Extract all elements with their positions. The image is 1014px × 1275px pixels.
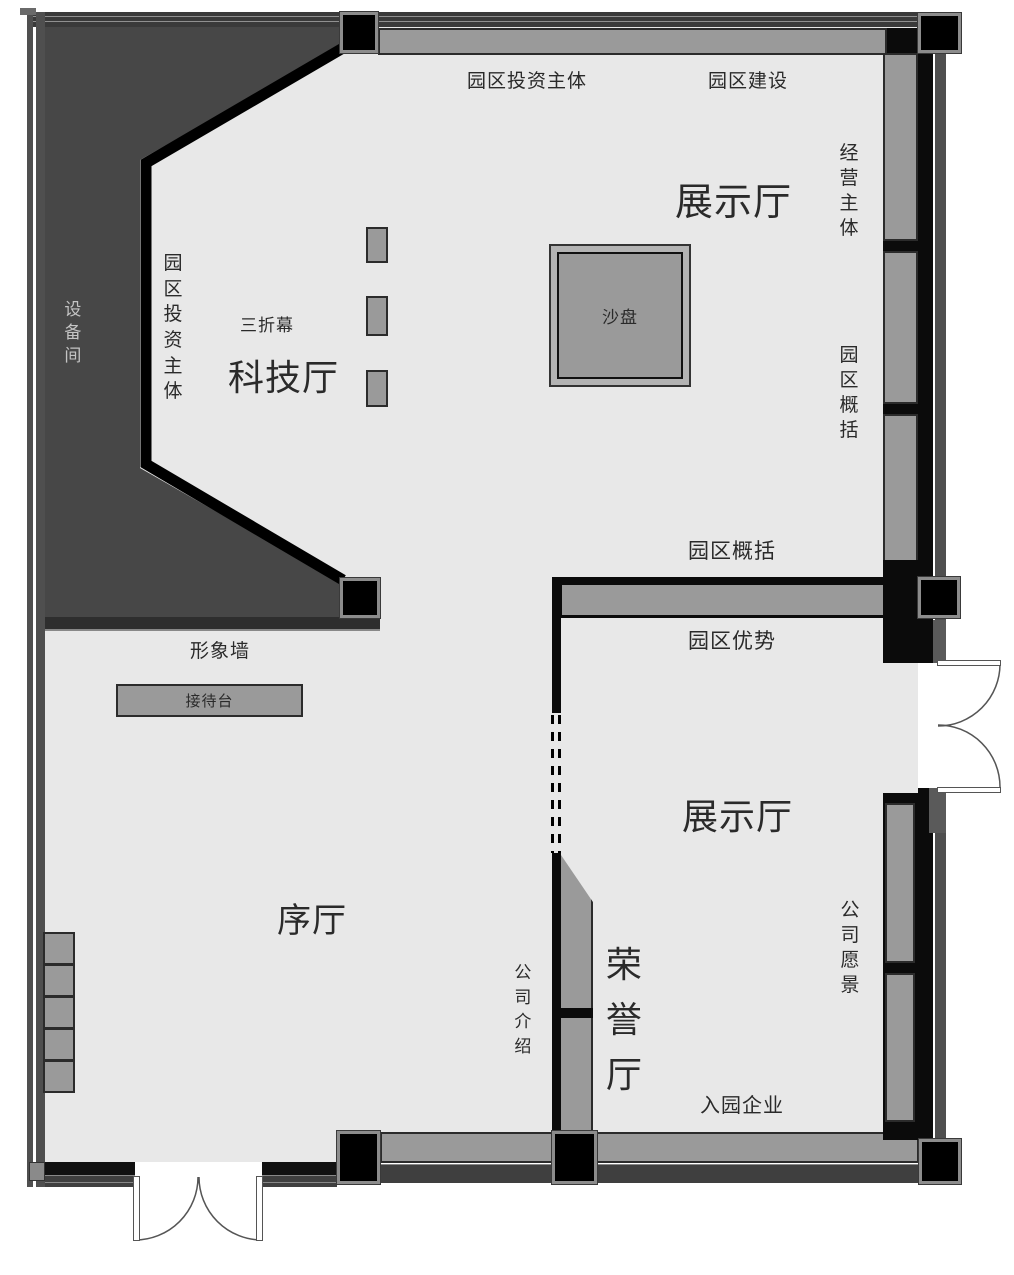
honor-hall-panel xyxy=(561,855,593,1132)
right-door-bottom-arc xyxy=(938,725,1000,787)
bottom-left-corner-block xyxy=(29,1162,45,1181)
label-image-wall: 形象墙 xyxy=(190,636,250,663)
label-operating-entity: 经营主体 xyxy=(839,141,859,241)
bottom-wall-left xyxy=(45,1162,135,1187)
display-panel-operating-entity xyxy=(883,53,918,241)
mid-dividing-wall-fill xyxy=(562,585,883,615)
label-company-vision: 公司愿景 xyxy=(840,898,860,998)
top-left-notch xyxy=(20,8,36,15)
top-display-wall xyxy=(378,28,887,55)
floor-plan-canvas: 沙盘 接待台 园区投资主体 园区建设 展示厅 经营主体 设备间 园区投资主体 三… xyxy=(0,0,1014,1275)
left-wall-cabinet-4 xyxy=(43,1028,75,1061)
column-top-right xyxy=(918,13,961,53)
image-wall-band xyxy=(45,617,380,631)
column-mid-left xyxy=(340,578,380,618)
label-honor-hall: 荣誉厅 xyxy=(605,938,643,1103)
sand-table-inner: 沙盘 xyxy=(557,252,683,379)
label-park-investor-top: 园区投资主体 xyxy=(467,66,587,93)
top-wall-black-segment xyxy=(887,28,918,55)
label-park-overview-mid: 园区概括 xyxy=(688,535,776,565)
bottom-door-leaf-left xyxy=(133,1176,140,1241)
display-panel-park-overview xyxy=(883,251,918,404)
dashed-opening-left-line xyxy=(551,715,554,853)
column-mid-right xyxy=(918,577,960,618)
display-panel-company-vision xyxy=(885,803,915,963)
label-tech-hall: 科技厅 xyxy=(228,349,339,401)
bottom-wall-gray-band xyxy=(380,1132,919,1163)
right-door-leaf-top xyxy=(937,660,1001,666)
label-triple-screen: 三折幕 xyxy=(240,311,294,336)
label-park-construction: 园区建设 xyxy=(708,66,788,93)
right-door-top-arc xyxy=(938,664,1000,726)
label-equipment-room: 设备间 xyxy=(64,299,82,368)
reception-desk: 接待台 xyxy=(116,684,303,717)
column-top-center xyxy=(340,12,378,53)
triple-screen-block-1 xyxy=(366,227,388,263)
display-panel-enterprises xyxy=(885,973,915,1122)
label-park-investor-left: 园区投资主体 xyxy=(163,251,183,405)
right-door-leaf-bottom xyxy=(937,787,1001,793)
label-company-intro: 公司介绍 xyxy=(514,961,532,1060)
bottom-door-right-arc xyxy=(199,1177,262,1240)
label-park-overview-right: 园区概括 xyxy=(839,343,859,443)
label-park-advantage: 园区优势 xyxy=(688,625,776,655)
sand-table-label: 沙盘 xyxy=(602,303,638,328)
bottom-door-leaf-right xyxy=(256,1176,263,1241)
column-bottom-left xyxy=(337,1131,380,1184)
triple-screen-block-2 xyxy=(366,296,388,336)
left-exterior-wall-outer xyxy=(27,12,33,1187)
honor-hall-panel-divider xyxy=(561,1008,593,1018)
left-wall-cabinet-5 xyxy=(43,1060,75,1093)
label-exhibition-hall-lower: 展示厅 xyxy=(682,788,793,840)
display-panel-right-3 xyxy=(883,414,918,568)
interior-wall-lower xyxy=(552,853,561,1140)
right-wall-trim-lower xyxy=(935,833,946,1184)
bottom-right-connector xyxy=(883,1122,933,1140)
right-door-frame-bottom xyxy=(929,788,946,833)
label-foyer: 序厅 xyxy=(277,893,347,942)
left-wall-cabinet-2 xyxy=(43,964,75,997)
left-wall-cabinet-1 xyxy=(43,932,75,965)
reception-desk-label: 接待台 xyxy=(185,690,233,711)
column-bottom-right xyxy=(919,1139,961,1184)
sand-table: 沙盘 xyxy=(549,244,691,387)
top-exterior-wall xyxy=(27,12,918,27)
bottom-wall-trim xyxy=(380,1164,919,1183)
bottom-wall-mid xyxy=(262,1162,337,1187)
dashed-opening-right-line xyxy=(558,715,561,853)
bottom-door-left-arc xyxy=(135,1177,198,1240)
label-exhibition-hall-upper: 展示厅 xyxy=(675,171,792,226)
label-enterprises-in-park: 入园企业 xyxy=(700,1089,784,1118)
left-wall-cabinet-3 xyxy=(43,996,75,1029)
right-wall-trim-upper xyxy=(935,13,946,663)
interior-wall-upper-stub xyxy=(552,618,561,713)
column-bottom-center xyxy=(552,1131,597,1184)
wall-and-door-arc-layer xyxy=(0,0,1014,1275)
triple-screen-block-3 xyxy=(366,370,388,407)
